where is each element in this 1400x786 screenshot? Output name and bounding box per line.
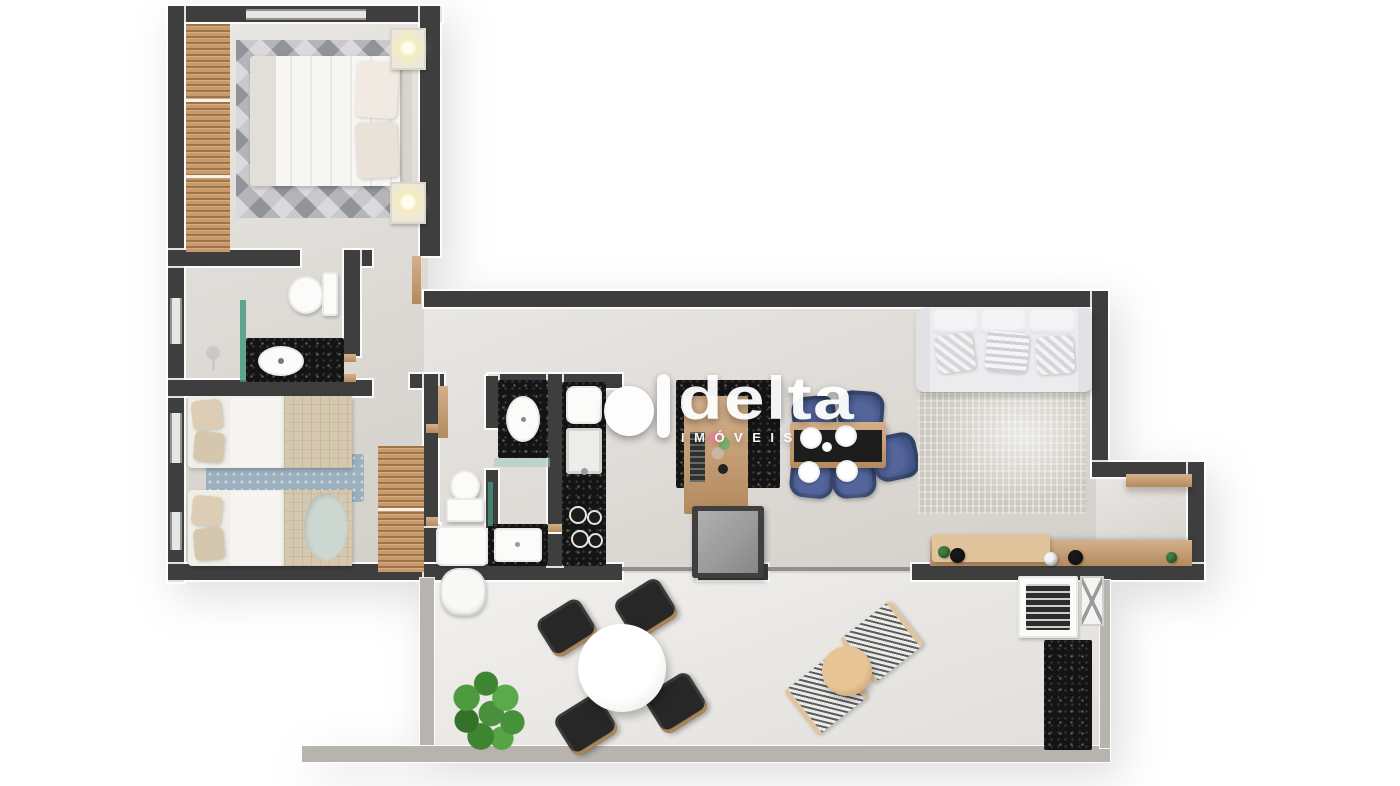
cooktop-burner — [569, 506, 587, 524]
laundry-tub — [436, 526, 488, 566]
bedroom1-wardrobe — [186, 24, 230, 252]
bed-blanket-fold — [250, 56, 276, 186]
sliding-glass-door-right — [768, 567, 910, 571]
balcony-floor — [430, 573, 1108, 753]
wardrobe-divider — [378, 508, 424, 511]
sink-drain — [521, 417, 526, 422]
bathroom2-kitchen-wall-lower — [548, 534, 562, 566]
sofa-back-cushion — [1028, 310, 1076, 334]
shower-head-stem — [212, 358, 215, 370]
delta-imoveis-watermark: delta IMÓVEIS — [604, 374, 823, 445]
lounge-side-table — [822, 646, 872, 696]
bedroom2-window-2 — [170, 512, 182, 550]
bathroom1-window — [170, 298, 182, 344]
floorplan-render: delta IMÓVEIS — [0, 0, 1400, 786]
sofa-pillow — [934, 332, 977, 375]
toilet-tank — [322, 272, 338, 316]
balcony-bottom-wall — [302, 746, 1110, 762]
shower-glass-panel — [240, 300, 246, 382]
brand-subtitle: IMÓVEIS — [681, 430, 823, 445]
living-rug — [918, 386, 1086, 514]
bathroom1-door-frame-bottom — [344, 374, 356, 382]
bed-blanket-beige — [284, 396, 352, 468]
bed-pillow — [191, 399, 224, 432]
toilet-tank — [446, 498, 484, 522]
shower-drain — [515, 542, 520, 547]
core-left-wall — [424, 374, 438, 526]
bathroom1-door-frame-top — [344, 354, 356, 362]
glass-shelf — [494, 458, 550, 467]
kitchen-door-frame — [548, 524, 562, 532]
cooktop-burner — [587, 510, 602, 525]
bed-duvet-white — [230, 396, 284, 468]
bathroom1-bedroom2-wall — [168, 380, 372, 396]
bedroom2-window-1 — [170, 413, 182, 463]
bed-duvet-white — [230, 490, 284, 566]
bed-pillow — [191, 495, 224, 528]
bedroom1-window — [246, 9, 366, 20]
sofa-armrest — [1078, 308, 1092, 392]
balcony-round-table — [578, 624, 666, 712]
logo-bar — [657, 374, 670, 438]
decor-ball-black — [1068, 550, 1083, 565]
brand-name: delta — [678, 374, 855, 423]
balcony-left-wall — [420, 578, 434, 750]
table-lamp — [398, 38, 418, 58]
delta-logo-icon — [604, 374, 674, 440]
sofa-armrest — [916, 308, 930, 392]
shower-glass-panel — [488, 482, 493, 526]
balcony-granite-counter — [1044, 640, 1092, 750]
barbecue-cart — [1080, 576, 1104, 626]
sofa-back-cushion — [980, 310, 1026, 334]
bathroom1-right-wall — [344, 250, 360, 356]
refrigerator — [698, 511, 758, 573]
barbecue-grill-grate — [1026, 584, 1070, 630]
centerpiece — [822, 442, 832, 452]
dinner-plate — [836, 460, 858, 482]
bed-pillow — [355, 121, 400, 179]
bedroom2-door-frame-bottom — [426, 517, 438, 526]
watermark-text: delta IMÓVEIS — [678, 374, 823, 445]
sofa-back-cushion — [932, 310, 978, 334]
bed-pillow — [193, 527, 226, 561]
kitchen-faucet — [581, 468, 588, 475]
bathroom2-divider-upper — [486, 376, 498, 428]
left-outer-wall — [168, 6, 184, 582]
cooktop-burner — [571, 530, 589, 548]
bedroom1-bathroom1-wall — [168, 250, 300, 266]
cooktop-burner — [588, 533, 603, 548]
decor-ball-green — [1166, 552, 1177, 563]
decor-ball-white — [1044, 552, 1058, 566]
living-top-wall — [424, 291, 1108, 307]
decor-ball-black — [950, 548, 965, 563]
kitchen-appliance — [566, 386, 602, 424]
toilet-bowl — [288, 276, 324, 314]
wardrobe-divider — [186, 175, 230, 178]
sink-drain — [278, 358, 284, 364]
sofa-pillow — [984, 330, 1029, 374]
logo-circle — [604, 386, 654, 436]
bathroom2-door-leaf — [438, 386, 448, 438]
water-heater — [440, 568, 486, 616]
decor-ball-green — [938, 546, 950, 558]
bathroom2-kitchen-wall-upper — [548, 374, 562, 524]
bed-pillow — [193, 431, 226, 464]
living-right-wall — [1092, 291, 1108, 471]
potted-plant — [442, 666, 530, 754]
sliding-glass-door-left — [622, 567, 698, 571]
table-lamp — [398, 192, 418, 212]
bedroom2-door-frame-top — [426, 424, 438, 433]
wall-shelf — [1126, 474, 1192, 487]
bedroom1-door-leaf — [412, 256, 421, 304]
island-decor-bowl — [718, 464, 728, 474]
dinner-plate — [798, 461, 820, 483]
sofa-pillow — [1035, 335, 1076, 376]
wardrobe-divider — [186, 99, 230, 102]
